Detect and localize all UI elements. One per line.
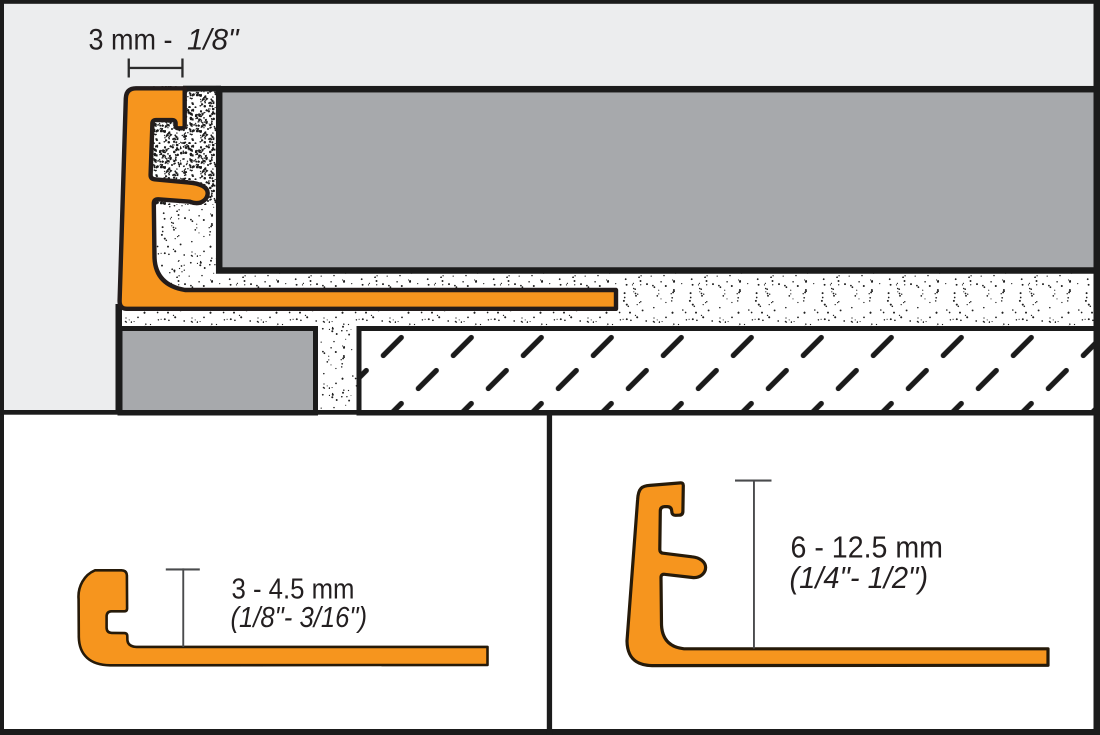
svg-text:3 - 4.5 mm: 3 - 4.5 mm <box>232 574 355 606</box>
svg-text:(1/8"- 3/16"): (1/8"- 3/16") <box>231 602 368 634</box>
svg-text:3 mm -: 3 mm - <box>89 24 173 57</box>
svg-text:1/8": 1/8" <box>187 24 240 57</box>
svg-text:6 - 12.5 mm: 6 - 12.5 mm <box>791 531 944 565</box>
svg-text:(1/4"- 1/2"): (1/4"- 1/2") <box>790 561 929 595</box>
